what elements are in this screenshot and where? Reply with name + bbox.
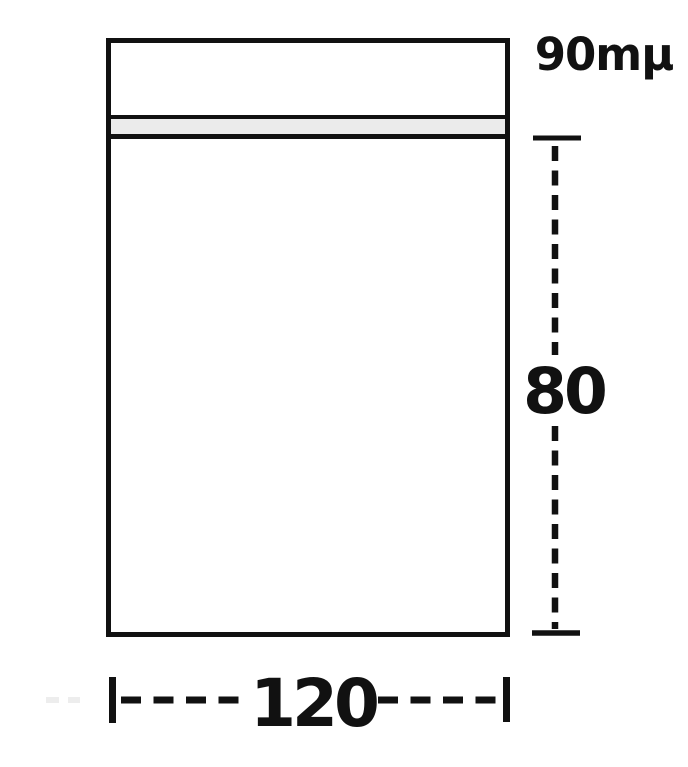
width-label: 120 <box>250 665 377 742</box>
seal-strip-fill <box>111 118 505 135</box>
thickness-label: 90mµ <box>535 28 674 81</box>
bag-dimension-drawing: 90mµ 80 120 <box>0 0 688 767</box>
diagram-canvas: 90mµ 80 120 <box>0 0 688 767</box>
height-label: 80 <box>523 355 605 428</box>
